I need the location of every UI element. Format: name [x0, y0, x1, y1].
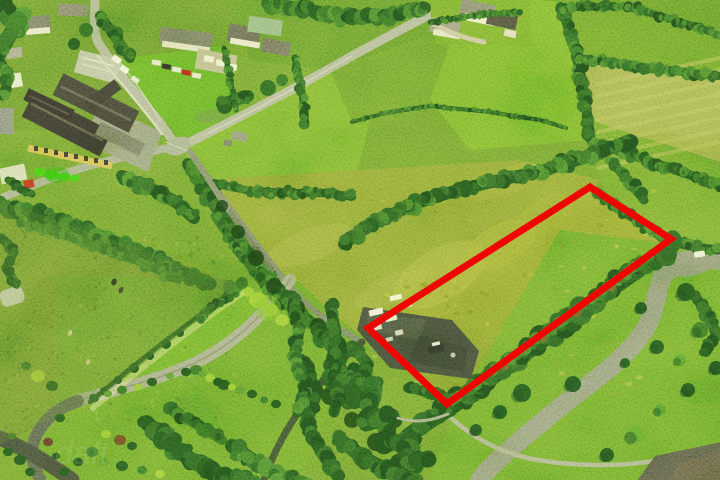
svg-text:daft: daft	[55, 435, 109, 471]
